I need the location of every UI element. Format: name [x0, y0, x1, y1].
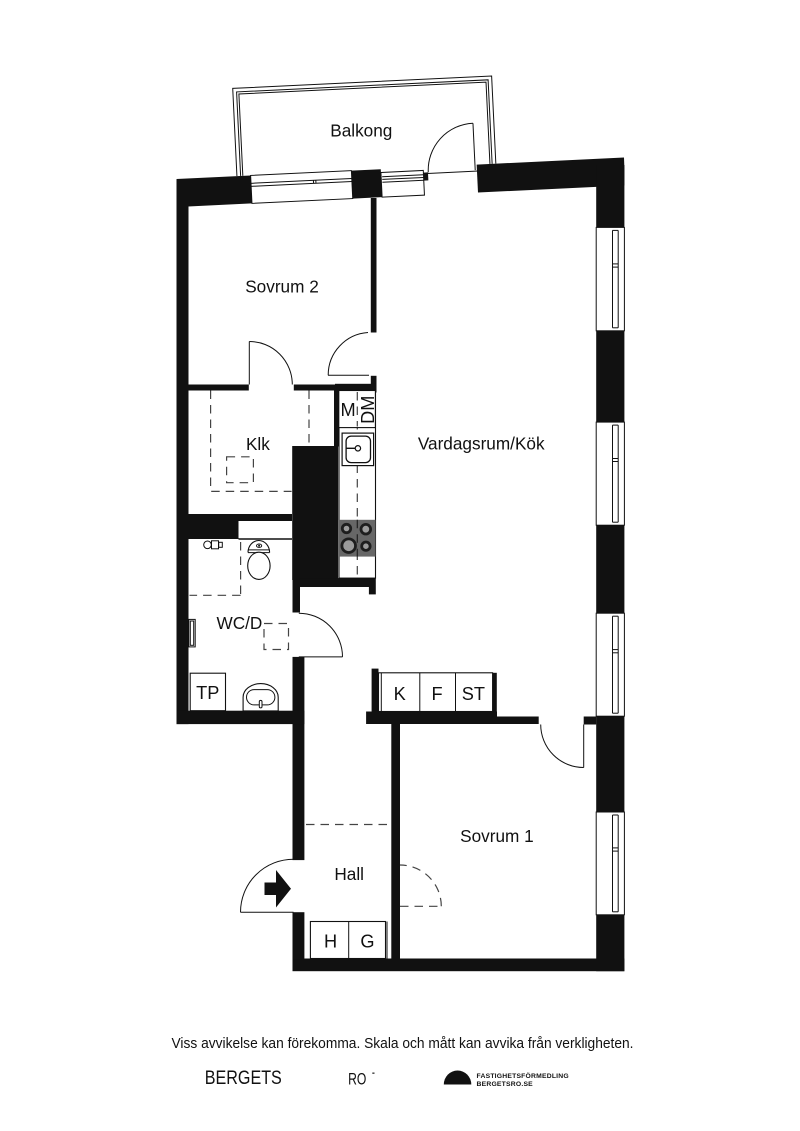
svg-text:Vardagsrum/Kök: Vardagsrum/Kök: [418, 434, 545, 454]
svg-text:RO: RO: [348, 1070, 366, 1089]
svg-text:Balkong: Balkong: [330, 121, 392, 141]
svg-text:DM: DM: [358, 396, 378, 424]
svg-text:M: M: [341, 400, 356, 420]
svg-text:WC/D: WC/D: [216, 613, 262, 633]
svg-text:Hall: Hall: [334, 864, 364, 884]
svg-text:H: H: [324, 932, 337, 952]
svg-text:FASTIGHETSFÖRMEDLING: FASTIGHETSFÖRMEDLING: [477, 1071, 569, 1080]
svg-text:Sovrum 1: Sovrum 1: [460, 826, 534, 846]
svg-text:BERGETS: BERGETS: [205, 1068, 282, 1089]
svg-text:TP: TP: [196, 683, 219, 703]
svg-text:ST: ST: [462, 684, 485, 704]
svg-text:G: G: [360, 932, 374, 952]
svg-text:K: K: [394, 684, 406, 704]
svg-text:F: F: [431, 684, 442, 704]
svg-text:Sovrum 2: Sovrum 2: [245, 276, 319, 296]
svg-text:BERGETSRO.SE: BERGETSRO.SE: [477, 1081, 534, 1088]
svg-text:Viss avvikelse kan förekomma.: Viss avvikelse kan förekomma. Skala och …: [172, 1036, 634, 1052]
svg-text:Klk: Klk: [246, 434, 270, 454]
